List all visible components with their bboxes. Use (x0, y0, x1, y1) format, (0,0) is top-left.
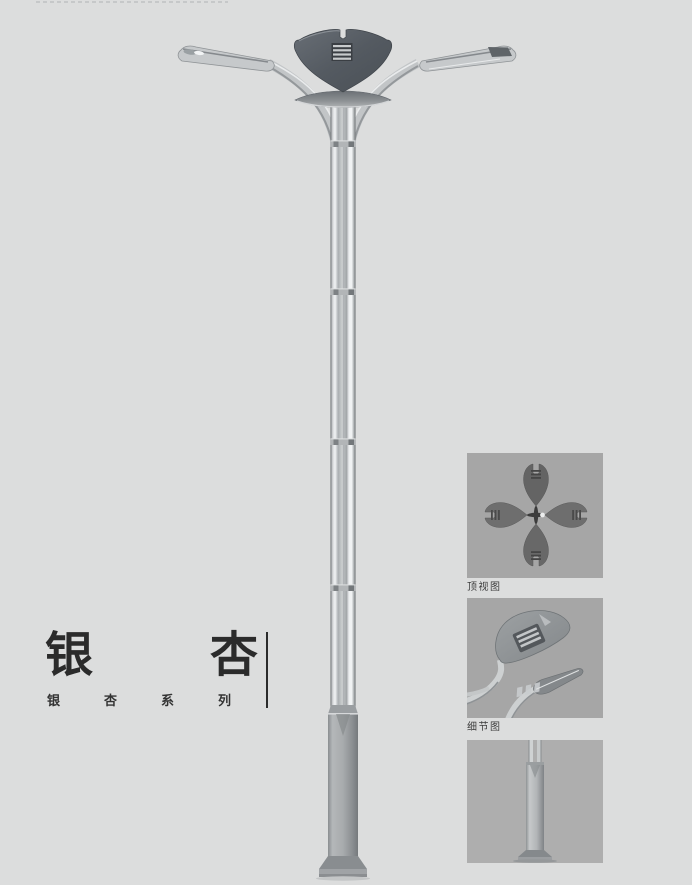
pole-joint-band (331, 288, 356, 295)
right-lamp-head (420, 46, 516, 71)
base-column (328, 705, 358, 863)
series-char: 杏 (104, 690, 117, 709)
gallery-panel-top-view: 顶视图 (467, 453, 603, 593)
pole-joint-band (331, 438, 356, 445)
gallery-panel-detail-view: 细节图 (467, 598, 603, 733)
series-char: 列 (218, 690, 231, 709)
title-char: 银 (45, 630, 93, 682)
ginkgo-crown (294, 29, 391, 107)
top-view-illustration (467, 453, 603, 578)
title-char: 杏 (210, 630, 258, 682)
series-char: 系 (161, 690, 174, 709)
top-view-image (467, 453, 603, 578)
pole (330, 102, 355, 714)
series-subtitle: 银 杏 系 列 (47, 690, 231, 709)
title-divider-line (266, 632, 268, 708)
pole-joint-band (331, 140, 356, 147)
panel-caption: 细节图 (467, 722, 603, 733)
series-char: 银 (47, 690, 60, 709)
gallery-panel-base-view (467, 740, 603, 867)
base-plate (316, 856, 370, 881)
catalog-page: 银 杏 银 杏 系 列 (0, 0, 692, 885)
detail-view-image (467, 598, 603, 718)
pole-joint-band (331, 584, 356, 591)
base-view-illustration (467, 740, 603, 863)
detail-view-illustration (467, 598, 603, 718)
left-lamp-head (178, 46, 274, 71)
panel-caption: 顶视图 (467, 582, 603, 593)
base-view-image (467, 740, 603, 863)
crown-vent-grille (332, 43, 353, 61)
product-title: 银 杏 (45, 630, 258, 682)
